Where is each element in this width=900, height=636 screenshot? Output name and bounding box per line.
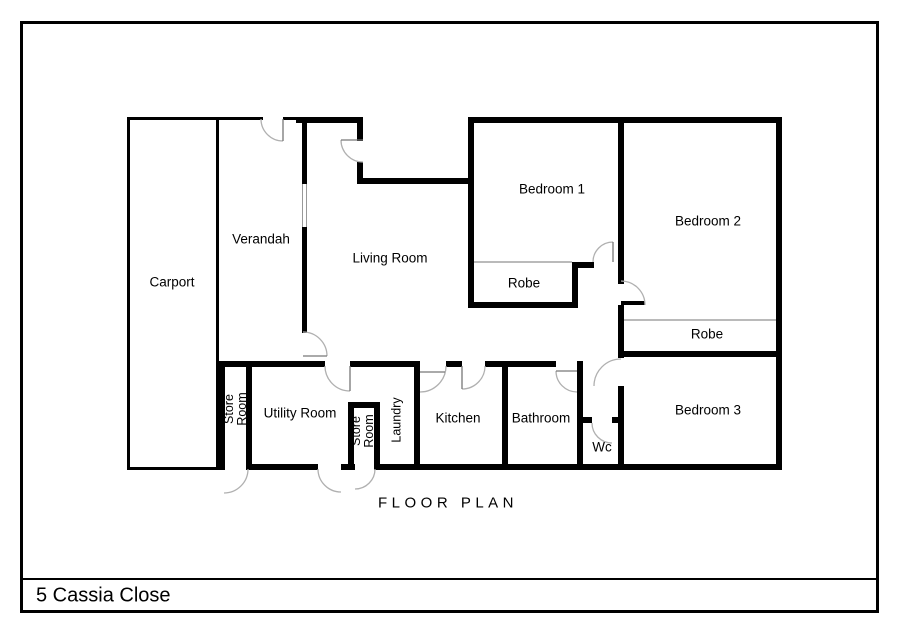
room-label-bedroom-1: Bedroom 1	[519, 183, 585, 198]
room-label-store-room-1: Store Room	[223, 386, 249, 432]
room-label-living-room: Living Room	[352, 252, 427, 267]
address-divider	[20, 578, 879, 580]
floor-plan-drawing	[0, 0, 900, 636]
room-label-laundry: Laundry	[390, 397, 403, 442]
room-label-kitchen: Kitchen	[435, 412, 480, 427]
room-label-bedroom-2: Bedroom 2	[675, 215, 741, 230]
room-label-robe-1: Robe	[508, 277, 540, 292]
room-label-store-room-2: Store Room	[350, 408, 376, 454]
door-leaves	[283, 119, 613, 391]
room-label-wc: Wc	[592, 441, 612, 456]
room-label-robe-2: Robe	[691, 328, 723, 343]
floor-plan-title: FLOOR PLAN	[378, 495, 518, 512]
floor-plan-page: Carport Verandah Living Room Bedroom 1 B…	[0, 0, 900, 636]
property-address: 5 Cassia Close	[36, 585, 171, 608]
room-label-carport: Carport	[149, 276, 194, 291]
room-label-verandah: Verandah	[232, 233, 290, 248]
room-label-bathroom: Bathroom	[512, 412, 571, 427]
verandah-window	[303, 184, 307, 227]
room-label-utility-room: Utility Room	[264, 407, 337, 422]
room-label-bedroom-3: Bedroom 3	[675, 404, 741, 419]
